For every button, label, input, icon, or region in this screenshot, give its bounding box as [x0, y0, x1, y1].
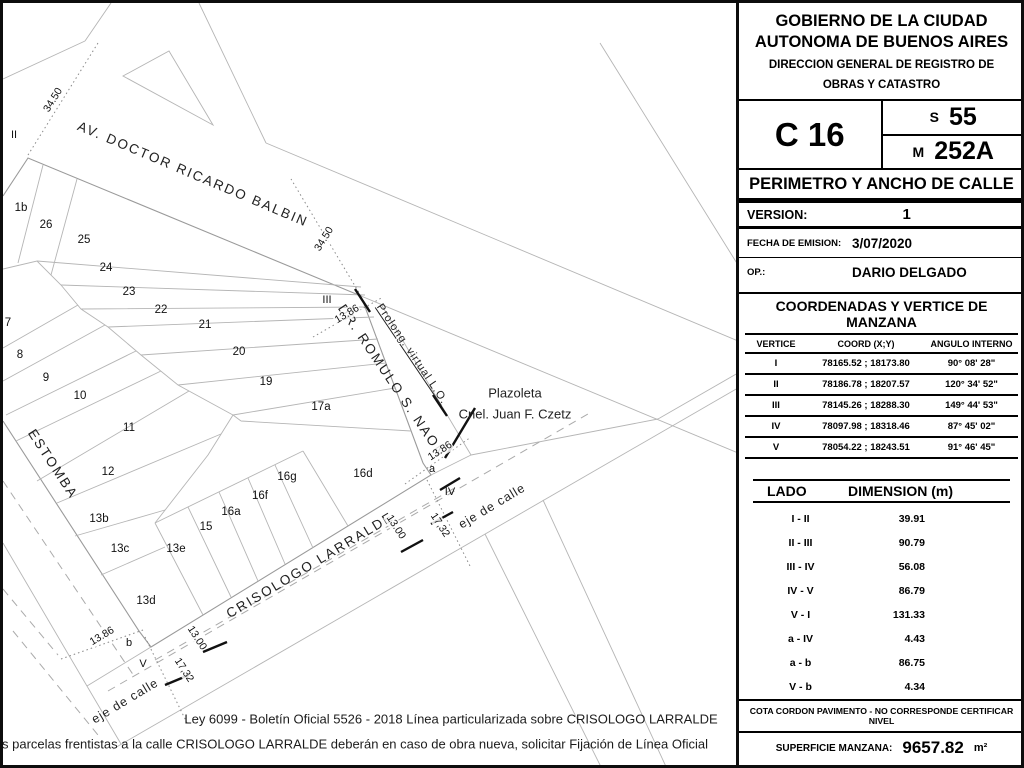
side-dimension-value: 86.75 [848, 657, 943, 669]
block-outline [3, 158, 431, 647]
parcel-label: 12 [102, 466, 115, 478]
manzana-prefix: M [913, 144, 925, 160]
coordinates-cell: 87° 45' 02" [925, 421, 1018, 432]
parcel-label: 1b [15, 202, 28, 214]
coordinates-cell: VERTICE [745, 339, 807, 349]
side-name: II - III [753, 537, 848, 549]
parcel-label: 16g [277, 471, 296, 483]
parcel-label: 24 [100, 262, 113, 274]
emission-date-row: FECHA DE EMISION: 3/07/2020 [739, 229, 1024, 258]
parcel-label: 15 [200, 521, 213, 533]
coordinates-cell: II [745, 379, 807, 390]
coordinates-cell: IV [745, 421, 807, 432]
cadastral-codes: C 16 S 55 M 252A [739, 101, 1024, 170]
coordinates-cell: ANGULO INTERNO [925, 339, 1018, 349]
coordinates-cell: 149° 44' 53" [925, 400, 1018, 411]
coordinates-row: II78186.78 ; 18207.57120° 34' 52" [745, 375, 1018, 396]
manzana-value: 252A [934, 137, 994, 166]
side-dimension-value: 39.91 [848, 513, 943, 525]
coordinates-header-row: VERTICECOORD (X;Y)ANGULO INTERNO [745, 335, 1018, 354]
agency-name-line2: AUTONOMA DE BUENOS AIRES [743, 32, 1020, 53]
side-name: IV - V [753, 585, 848, 597]
parcel-label: 23 [123, 286, 136, 298]
parcel-label: 16f [252, 490, 268, 502]
parcel-label: 16d [353, 468, 372, 480]
coordinates-table-title: COORDENADAS Y VERTICE DE MANZANA [745, 298, 1018, 335]
legal-note-line1: Ley 6099 - Boletín Oficial 5526 - 2018 L… [184, 712, 717, 727]
vertex-label: II [11, 129, 17, 141]
side-dimension-value: 4.34 [848, 681, 943, 693]
side-name: III - IV [753, 561, 848, 573]
side-name: I - II [753, 513, 848, 525]
coordinates-cell: 91° 46' 45" [925, 442, 1018, 453]
side-dimension-value: 90.79 [848, 537, 943, 549]
sides-table: LADO DIMENSION (m) I - II39.91II - III90… [739, 461, 1024, 699]
parcel-label: 22 [155, 304, 168, 316]
seccion-code: S 55 [883, 101, 1024, 135]
side-dimension-row: I - II39.91 [753, 507, 1010, 531]
parcel-label: 8 [17, 349, 23, 361]
side-name: V - b [753, 681, 848, 693]
seccion-value: 55 [949, 103, 977, 132]
parcel-label: 17a [311, 401, 330, 413]
side-dimension-value: 131.33 [848, 609, 943, 621]
coordinates-table-body: VERTICECOORD (X;Y)ANGULO INTERNOI78165.5… [745, 335, 1018, 459]
vertex-label: IV [445, 486, 455, 498]
superficie-label: SUPERFICIE MANZANA: [776, 743, 893, 754]
version-value: 1 [902, 206, 910, 223]
sides-col1-header: LADO [753, 483, 848, 499]
agency-header: GOBIERNO DE LA CIUDAD AUTONOMA DE BUENOS… [739, 3, 1024, 101]
coordinates-row: V78054.22 ; 18243.5191° 46' 45" [745, 438, 1018, 459]
parcel-label: 13c [111, 543, 130, 555]
side-dimension-row: IV - V86.79 [753, 579, 1010, 603]
coordinates-cell: 78145.26 ; 18288.30 [807, 400, 925, 411]
coordinates-cell: 120° 34' 52" [925, 379, 1018, 390]
parcel-label: 16a [221, 506, 240, 518]
street-lines [3, 3, 736, 765]
parcel-label: 9 [43, 372, 49, 384]
version-row: VERSION: 1 [739, 200, 1024, 229]
document-title: PERIMETRO Y ANCHO DE CALLE [739, 170, 1024, 200]
coordinates-row: IV78097.98 ; 18318.4687° 45' 02" [745, 417, 1018, 438]
circunscripcion-code: C 16 [739, 101, 883, 168]
legal-note-line2: s parcelas frentistas a la calle CRISOLO… [3, 737, 708, 752]
side-dimension-row: V - I131.33 [753, 603, 1010, 627]
side-dimension-value: 4.43 [848, 633, 943, 645]
coordinates-cell: COORD (X;Y) [807, 339, 925, 349]
coordinates-cell: 78165.52 ; 18173.80 [807, 358, 925, 369]
version-label: VERSION: [747, 208, 807, 222]
seccion-prefix: S [930, 109, 939, 125]
operator-label: OP.: [747, 267, 852, 278]
side-dimension-row: II - III90.79 [753, 531, 1010, 555]
vertex-label: V [139, 658, 146, 670]
side-dimension-value: 86.79 [848, 585, 943, 597]
manzana-code: M 252A [883, 136, 1024, 168]
cota-note: COTA CORDON PAVIMENTO - NO CORRESPONDE C… [739, 699, 1024, 731]
side-name: V - I [753, 609, 848, 621]
agency-name-line1: GOBIERNO DE LA CIUDAD [743, 11, 1020, 32]
side-dimension-row: III - IV56.08 [753, 555, 1010, 579]
coordinates-cell: V [745, 442, 807, 453]
coordinates-cell: III [745, 400, 807, 411]
coordinates-cell: 78186.78 ; 18207.57 [807, 379, 925, 390]
parcel-label: 7 [5, 317, 11, 329]
parcel-label: 21 [199, 319, 212, 331]
parcel-label: 19 [260, 376, 273, 388]
coordinates-cell: 78097.98 ; 18318.46 [807, 421, 925, 432]
coordinates-row: III78145.26 ; 18288.30149° 44' 53" [745, 396, 1018, 417]
cadastral-plan-document: AV. DOCTOR RICARDO BALBINDR. ROMULO S. N… [0, 0, 1024, 768]
operator-value: DARIO DELGADO [852, 265, 967, 280]
street-label: Plazoleta [488, 386, 541, 401]
coordinates-row: I78165.52 ; 18173.8090° 08' 28" [745, 354, 1018, 375]
side-dimension-value: 56.08 [848, 561, 943, 573]
map-linework [3, 3, 736, 765]
vertex-label: a [429, 463, 435, 475]
dotted-leader-lines [28, 43, 471, 725]
street-label: Cnel. Juan F. Czetz [459, 407, 572, 422]
superficie-value: 9657.82 [902, 738, 963, 758]
parcel-label: 25 [78, 234, 91, 246]
parcel-label: 26 [40, 219, 53, 231]
emission-date-label: FECHA DE EMISION: [747, 238, 852, 249]
parcel-label: 13b [89, 513, 108, 525]
side-dimension-row: V - b4.34 [753, 675, 1010, 699]
superficie-unit: m² [974, 742, 987, 754]
dimension-tick-marks [165, 289, 475, 685]
title-block-panel: GOBIERNO DE LA CIUDAD AUTONOMA DE BUENOS… [736, 3, 1024, 765]
parcel-label: 11 [123, 422, 135, 434]
coordinates-table: COORDENADAS Y VERTICE DE MANZANA VERTICE… [739, 294, 1024, 461]
vertex-label: b [126, 637, 132, 649]
cadastral-map: AV. DOCTOR RICARDO BALBINDR. ROMULO S. N… [3, 3, 736, 765]
operator-row: OP.: DARIO DELGADO [739, 258, 1024, 294]
agency-dept-line2: OBRAS Y CATASTRO [743, 77, 1020, 94]
coordinates-cell: 78054.22 ; 18243.51 [807, 442, 925, 453]
emission-date-value: 3/07/2020 [852, 236, 912, 251]
superficie-row: SUPERFICIE MANZANA: 9657.82 m² [739, 731, 1024, 765]
coordinates-cell: I [745, 358, 807, 369]
side-dimension-row: a - b86.75 [753, 651, 1010, 675]
parcel-label: 20 [233, 346, 246, 358]
parcel-label: 13d [136, 595, 155, 607]
sides-col2-header: DIMENSION (m) [848, 483, 1010, 499]
parcel-label: 10 [74, 390, 87, 402]
parcel-label: 13e [166, 543, 185, 555]
agency-dept-line1: DIRECCION GENERAL DE REGISTRO DE [743, 57, 1020, 74]
sides-table-header: LADO DIMENSION (m) [753, 479, 1010, 503]
vertex-label: III [322, 294, 331, 306]
side-dimension-row: a - IV4.43 [753, 627, 1010, 651]
side-name: a - b [753, 657, 848, 669]
sides-table-body: I - II39.91II - III90.79III - IV56.08IV … [753, 507, 1010, 699]
coordinates-cell: 90° 08' 28" [925, 358, 1018, 369]
side-name: a - IV [753, 633, 848, 645]
